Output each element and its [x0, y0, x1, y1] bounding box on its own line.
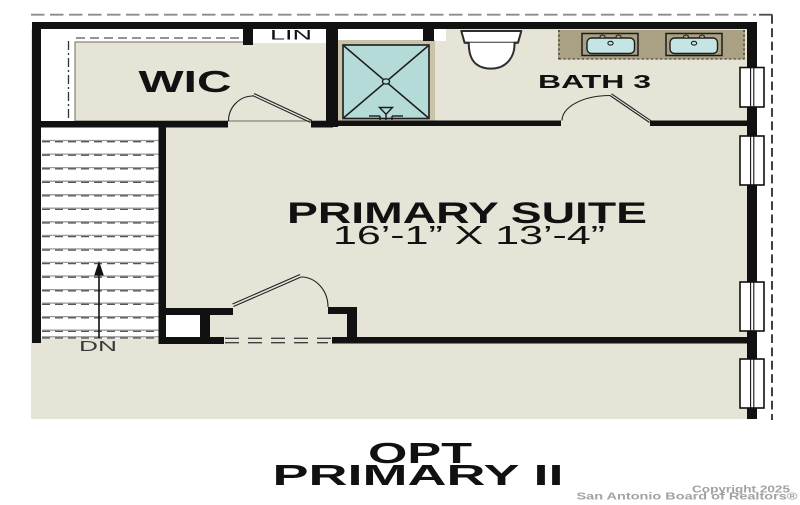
svg-text:DN: DN [79, 339, 117, 355]
svg-text:San Antonio Board of Realtors®: San Antonio Board of Realtors® [577, 491, 798, 501]
svg-text:BATH 3: BATH 3 [538, 71, 651, 92]
svg-text:LIN: LIN [270, 28, 312, 43]
svg-text:16’-1” X 13’-4”: 16’-1” X 13’-4” [333, 220, 605, 250]
svg-text:WIC: WIC [139, 64, 232, 99]
svg-text:PRIMARY II: PRIMARY II [273, 460, 564, 492]
